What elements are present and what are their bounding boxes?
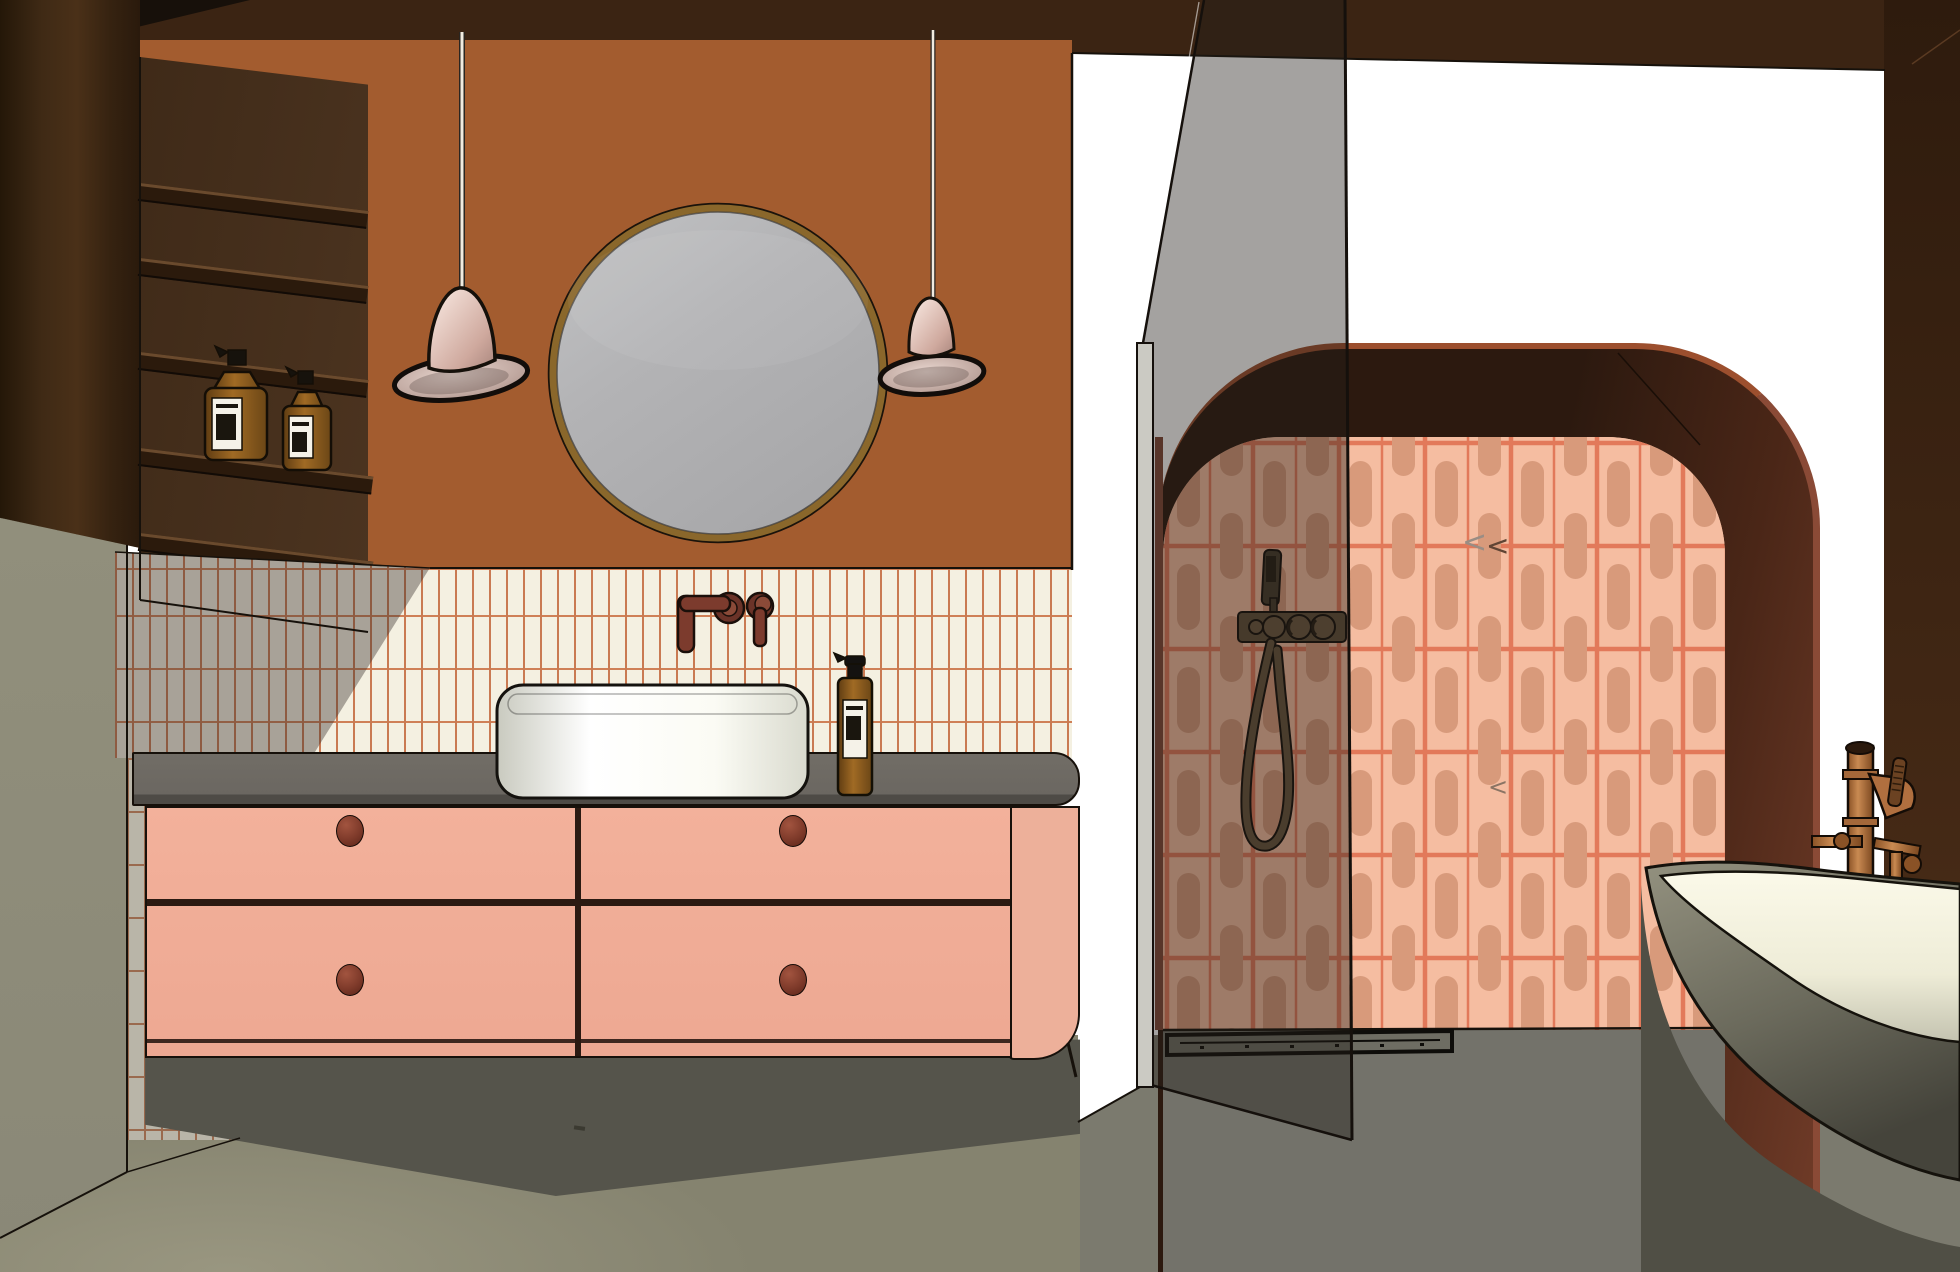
vanity-cabinet [145, 806, 1012, 1058]
drawer-gap-vertical [575, 808, 581, 1056]
drawer-knob-top-left [336, 815, 364, 847]
countertop [132, 752, 1080, 806]
vanity-side-panel [1008, 806, 1080, 1060]
wood-cabinet-side [0, 0, 140, 548]
right-dark-wall [1884, 0, 1960, 905]
bathroom-render: < < < [0, 0, 1960, 1272]
drawer-knob-top-right [779, 815, 807, 847]
drawer-knob-bottom-right [779, 964, 807, 996]
drawer-knob-bottom-left [336, 964, 364, 996]
